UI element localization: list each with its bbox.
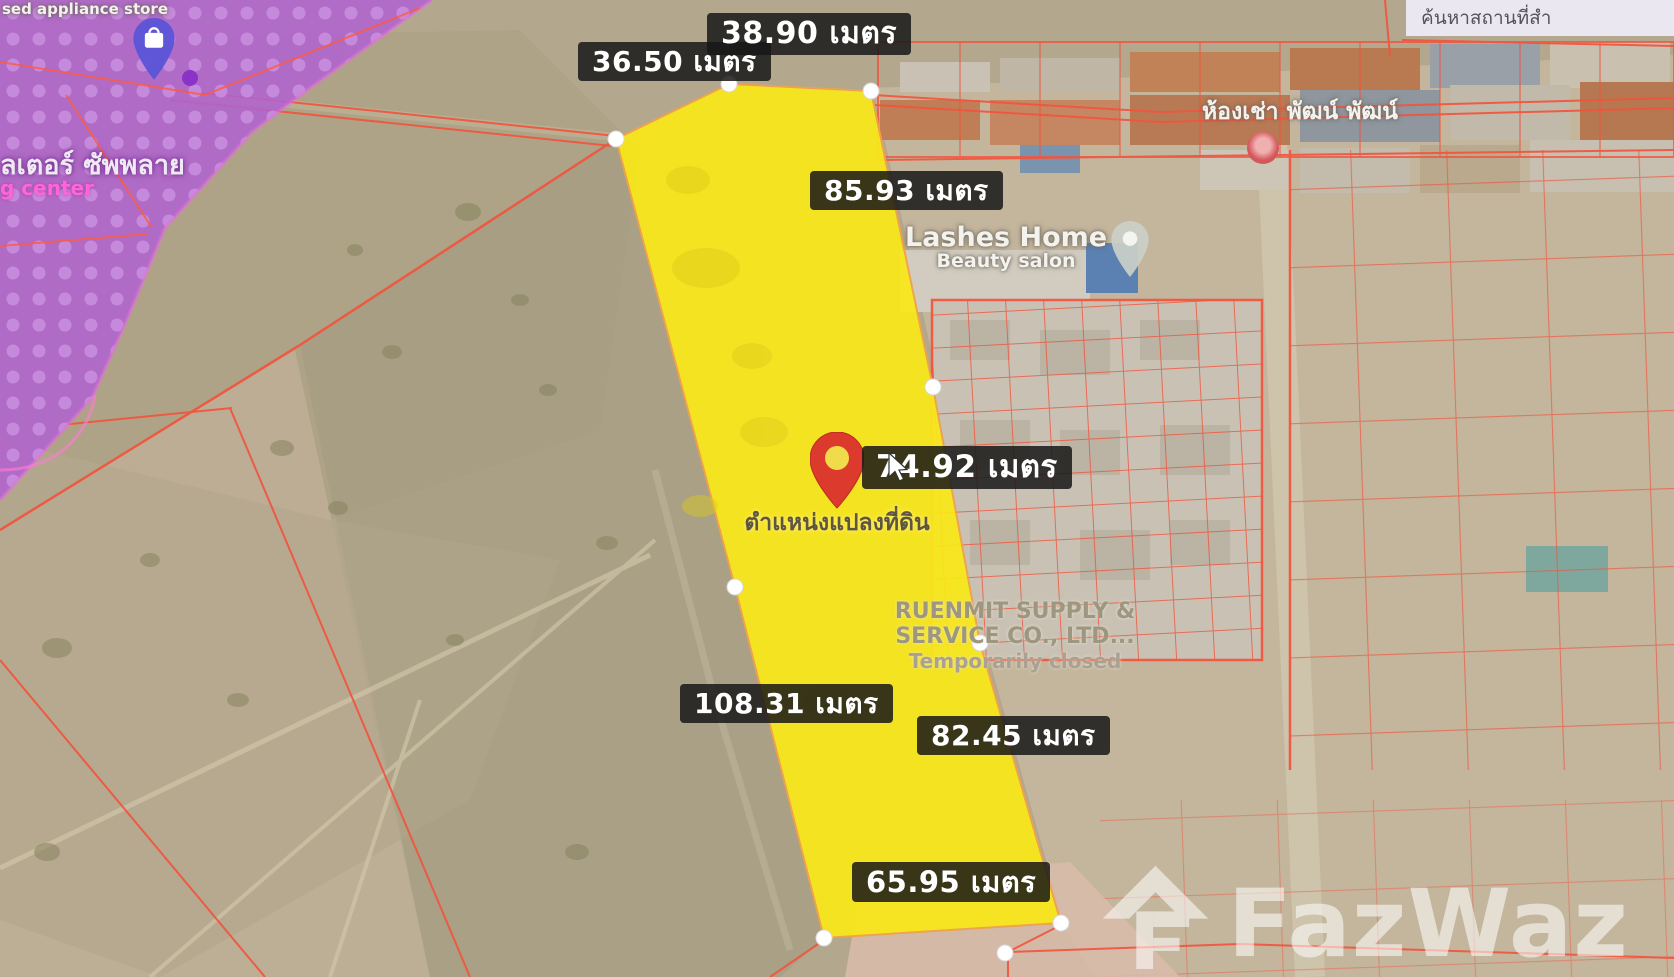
measurement-label-108-31: 108.31 เมตร [680, 684, 893, 723]
plot-vertex-handle[interactable] [925, 379, 941, 395]
poi-label-lashes-home[interactable]: Lashes Home Beauty salon [905, 224, 1107, 272]
plot-vertex-handle[interactable] [816, 930, 832, 946]
measurement-label-38-90: 38.90 เมตร [707, 13, 911, 55]
plot-location-pin-icon[interactable] [810, 432, 864, 510]
poi-name-line1: RUENMIT SUPPLY & [850, 599, 1180, 624]
plot-vertex-handle[interactable] [863, 83, 879, 99]
poi-label-rental-rooms[interactable]: ห้องเช่า พัฒน์ พัฒน์ [1202, 94, 1398, 130]
mouse-cursor [888, 452, 912, 484]
measurement-label-65-95: 65.95 เมตร [852, 862, 1050, 902]
measurement-label-82-45: 82.45 เมตร [917, 716, 1110, 755]
poi-label-ruenmit[interactable]: RUENMIT SUPPLY & SERVICE CO., LTD... Tem… [850, 599, 1180, 673]
plot-vertex-handle[interactable] [997, 945, 1013, 961]
search-input[interactable]: ค้นหาสถานที่สำ [1406, 0, 1674, 36]
plot-vertex-handle[interactable] [1053, 915, 1069, 931]
measurement-label-85-93: 85.93 เมตร [810, 171, 1003, 210]
map-canvas[interactable]: sed appliance store ลเตอร์ ซัพพลาย g cen… [0, 0, 1674, 977]
rental-poi-dot-icon[interactable] [1247, 132, 1279, 164]
store-pin-icon[interactable] [132, 18, 176, 82]
poi-label-center[interactable]: g center [0, 176, 94, 200]
poi-status: Temporarily closed [850, 650, 1180, 673]
plot-vertex-handle[interactable] [608, 131, 624, 147]
poi-name: Lashes Home [905, 224, 1107, 252]
plot-caption: ตำแหน่งแปลงที่ดิน [722, 505, 952, 541]
lashes-home-pin-icon[interactable] [1111, 221, 1149, 279]
plot-vertex-handle[interactable] [727, 579, 743, 595]
poi-label-appliance-store[interactable]: sed appliance store [2, 0, 168, 18]
poi-name-line2: SERVICE CO., LTD... [850, 624, 1180, 649]
poi-category: Beauty salon [905, 252, 1107, 272]
